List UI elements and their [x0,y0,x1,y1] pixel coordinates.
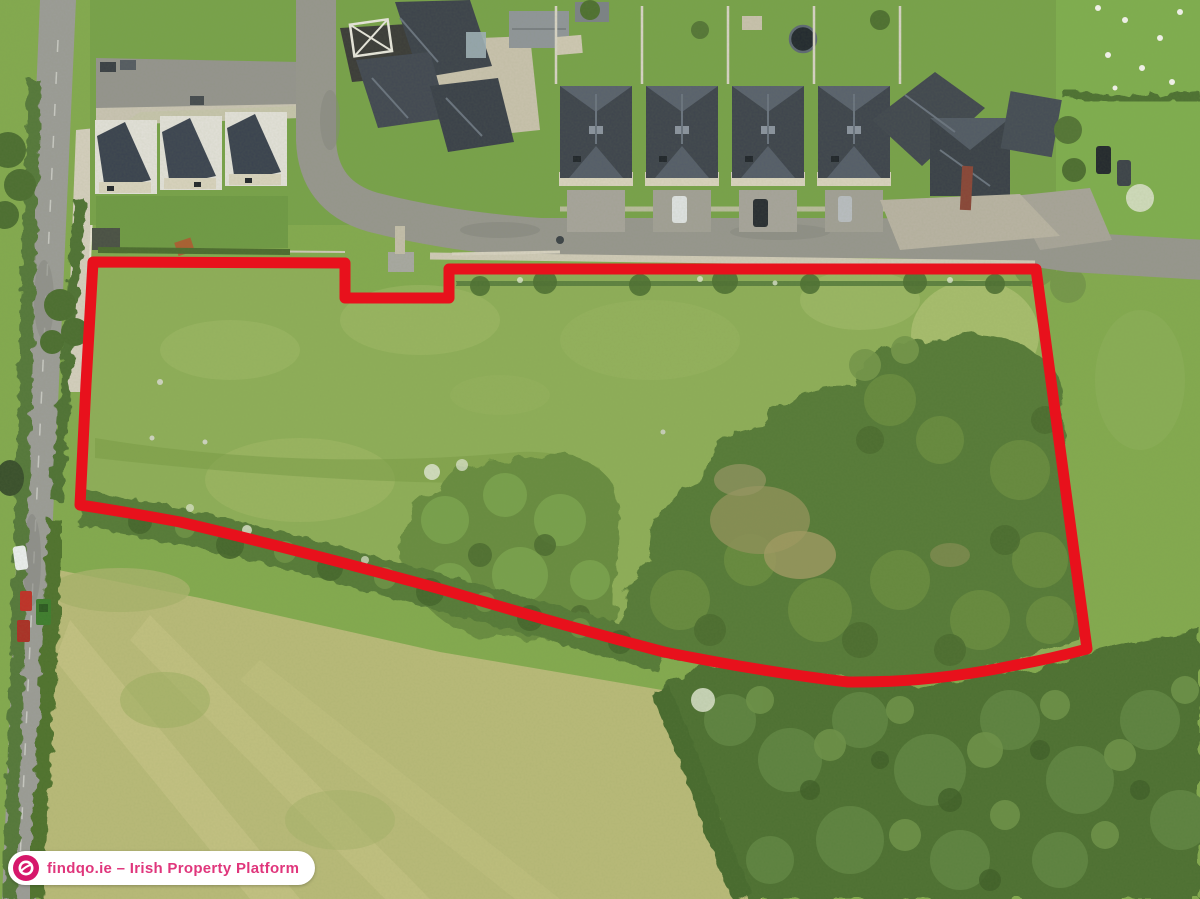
findqo-logo-icon [13,855,39,881]
watermark-text: findqo.ie – Irish Property Platform [47,860,299,877]
aerial-photo: findqo.ie – Irish Property Platform [0,0,1200,899]
grain-overlay [0,0,1200,899]
aerial-scene [0,0,1200,899]
watermark-badge: findqo.ie – Irish Property Platform [8,851,315,885]
